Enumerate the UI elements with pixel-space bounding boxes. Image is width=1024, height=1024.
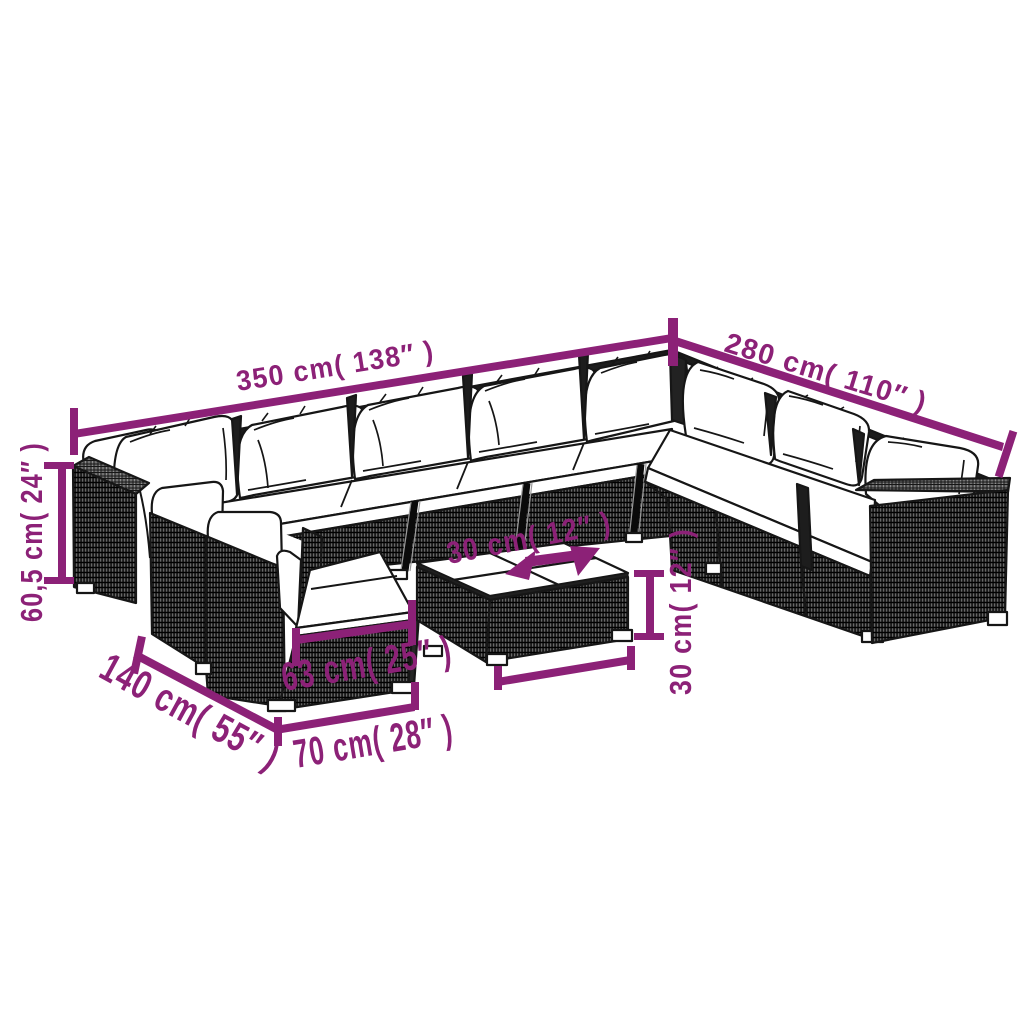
- svg-text:60,5 cm( 24″ ): 60,5 cm( 24″ ): [14, 442, 49, 622]
- svg-text:30 cm( 12″ ): 30 cm( 12″ ): [663, 528, 698, 695]
